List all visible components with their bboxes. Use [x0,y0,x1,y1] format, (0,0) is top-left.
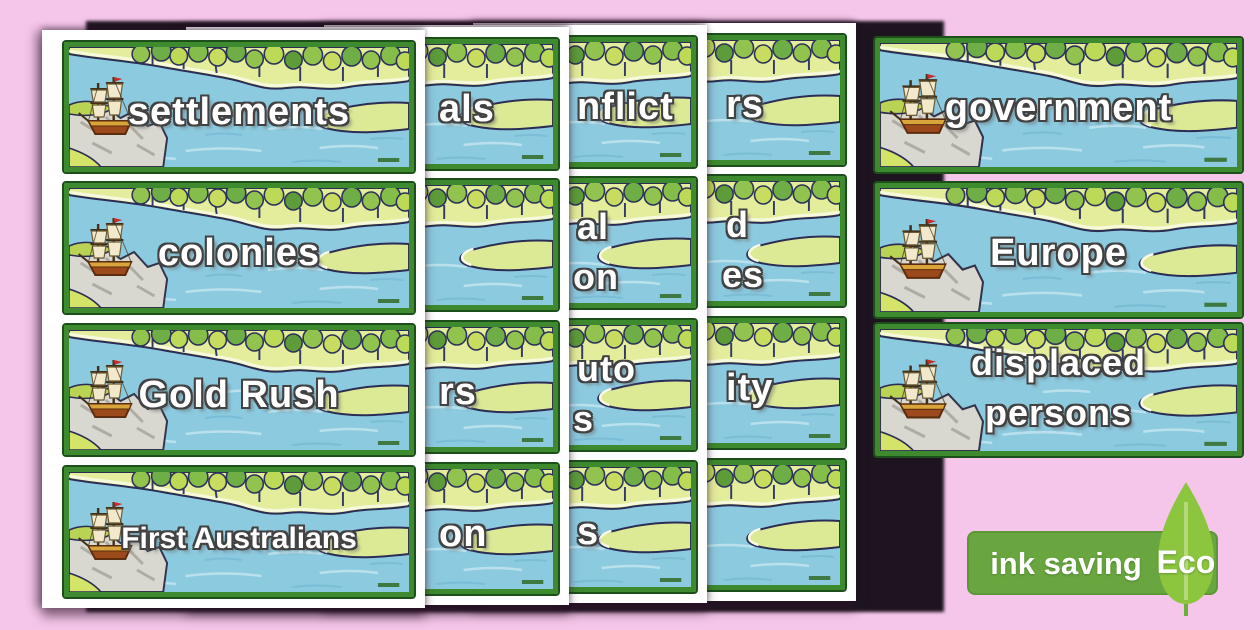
ink-saving-label: ink saving [973,548,1159,579]
card-word-fragment: es [722,257,764,293]
watermark-mark [1204,442,1226,446]
card-word: government [880,89,1237,127]
card-word: colonies [69,234,409,272]
card-word: Europe [880,234,1237,272]
watermark-mark [522,155,543,159]
watermark-mark [378,441,399,445]
card-word: Gold Rush [69,376,409,414]
watermark-mark [378,158,399,162]
card-word-fragment: s [573,401,594,437]
card-word-fragment: al [577,209,609,245]
card-word: settlements [69,93,409,131]
preview-canvas: settlements [0,0,1260,630]
watermark-mark [522,580,543,584]
card-word-fragment: on [439,515,487,553]
watermark-mark [660,294,681,298]
card-word: persons [880,395,1237,431]
card-word-fragment: als [439,90,495,128]
card-word-fragment: ity [726,369,773,407]
word-card: First Australians [64,467,414,597]
word-card: displacedpersons [875,324,1242,456]
watermark-mark [1204,303,1226,307]
word-card: Europe [875,183,1242,317]
card-word-fragment: s [577,513,599,551]
watermark-mark [660,436,681,440]
card-word-fragment: rs [439,373,477,411]
card-word: displaced [880,345,1237,381]
watermark-mark [809,434,830,438]
card-word-fragment: d [726,207,749,243]
watermark-mark [522,296,543,300]
word-card: colonies [64,183,414,313]
watermark-mark [378,299,399,303]
card-word-fragment: on [573,259,619,295]
watermark-mark [660,578,681,582]
card-word-fragment: uto [577,351,636,387]
card-word-fragment: rs [726,86,764,124]
watermark-mark [809,151,830,155]
word-card: Gold Rush [64,325,414,455]
card-word: First Australians [69,524,409,554]
word-card: government [875,38,1242,172]
watermark-mark [809,576,830,580]
card-word-fragment: nflict [577,88,674,126]
eco-label: Eco [1152,546,1220,578]
page-sheet-1: settlements [42,30,425,608]
word-card: settlements [64,42,414,172]
watermark-mark [809,292,830,296]
watermark-mark [1204,158,1226,162]
watermark-mark [522,438,543,442]
watermark-mark [378,583,399,587]
watermark-mark [660,153,681,157]
